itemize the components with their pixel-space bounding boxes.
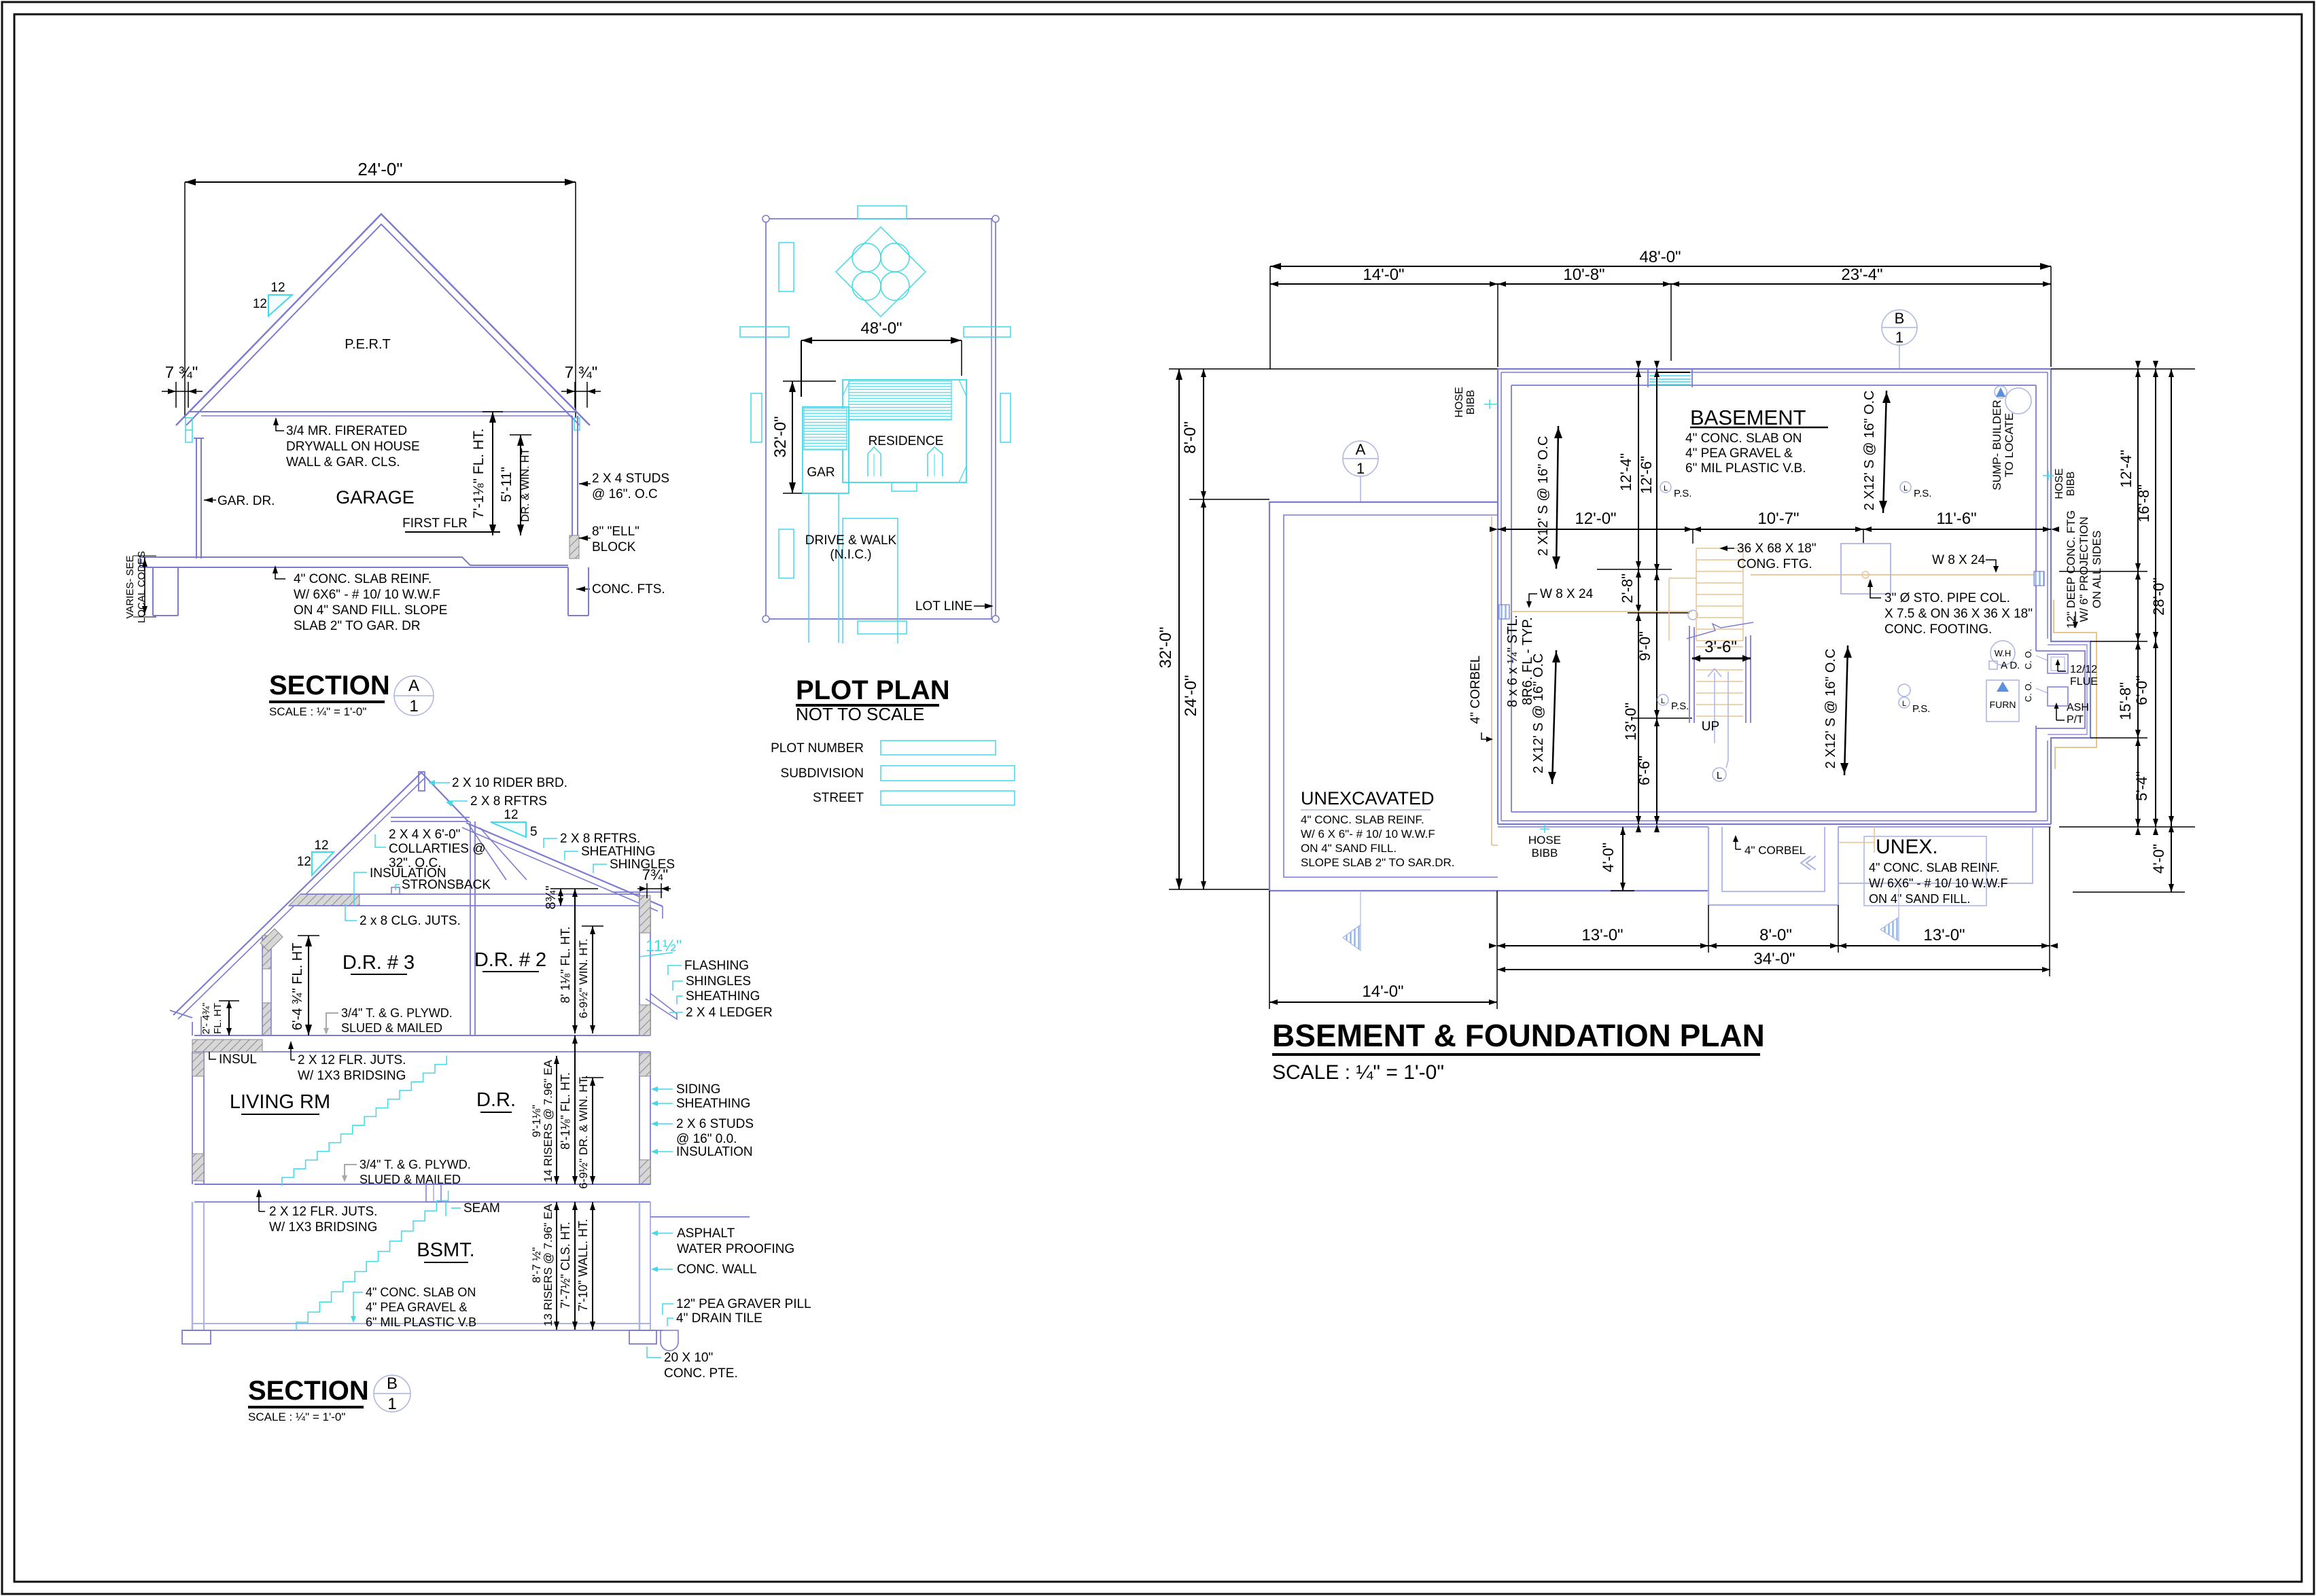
svg-text:SECTION: SECTION	[248, 1376, 369, 1406]
svg-text:L: L	[1661, 697, 1665, 705]
svg-text:1: 1	[1895, 329, 1903, 346]
svg-text:L: L	[1902, 700, 1906, 708]
svg-text:SLUED & MAILED: SLUED & MAILED	[359, 1173, 461, 1186]
svg-text:TO LOCATE: TO LOCATE	[2003, 413, 2016, 478]
svg-text:CONC. WALL: CONC. WALL	[677, 1262, 757, 1277]
svg-text:UP: UP	[1702, 720, 1719, 734]
svg-text:FURN: FURN	[1990, 699, 2016, 710]
svg-text:13'-0": 13'-0"	[1923, 926, 1965, 944]
svg-text:23'-4": 23'-4"	[1841, 266, 1882, 284]
svg-text:SUBDIVISION: SUBDIVISION	[781, 766, 864, 781]
svg-text:2 X 12 FLR. JUTS.: 2 X 12 FLR. JUTS.	[269, 1205, 377, 1219]
svg-text:12" PEA GRAVER PILL: 12" PEA GRAVER PILL	[676, 1297, 811, 1311]
svg-text:W 8 X 24: W 8 X 24	[1932, 553, 1986, 567]
svg-text:SHEATHING: SHEATHING	[581, 845, 655, 859]
svg-text:2 x 8 CLG. JUTS.: 2 x 8 CLG. JUTS.	[359, 914, 461, 928]
svg-text:P.S.: P.S.	[1914, 488, 1931, 499]
svg-text:7 ¾": 7 ¾"	[165, 363, 198, 382]
svg-text:INSULATION: INSULATION	[676, 1145, 753, 1159]
svg-text:4" PEA GRAVEL &: 4" PEA GRAVEL &	[366, 1300, 467, 1314]
svg-text:FIRST FLR: FIRST FLR	[402, 516, 468, 531]
svg-text:SCALE : ¼" = 1'-0": SCALE : ¼" = 1'-0"	[1272, 1061, 1444, 1084]
svg-text:12: 12	[297, 855, 311, 869]
svg-text:12: 12	[253, 297, 267, 311]
svg-text:4" PEA GRAVEL &: 4" PEA GRAVEL &	[1685, 446, 1793, 461]
svg-text:4" CONC. SLAB REINF.: 4" CONC. SLAB REINF.	[1869, 861, 1999, 874]
svg-text:32'-0": 32'-0"	[1157, 626, 1175, 668]
svg-text:8 x 6 x ¼" STL.: 8 x 6 x ¼" STL.	[1505, 615, 1520, 707]
svg-text:12: 12	[314, 838, 328, 853]
svg-text:A D.: A D.	[2001, 660, 2020, 671]
svg-text:2 X 10 RIDER BRD.: 2 X 10 RIDER BRD.	[452, 776, 567, 790]
svg-text:ASPHALT: ASPHALT	[677, 1226, 735, 1241]
svg-text:A: A	[1356, 441, 1366, 458]
svg-text:LOCAL CODES: LOCAL CODES	[136, 551, 147, 623]
svg-text:SUMP- BUILDER: SUMP- BUILDER	[1990, 400, 2003, 490]
svg-text:20 X 10": 20 X 10"	[664, 1351, 713, 1365]
svg-text:8' 1⅛" FL. HT.: 8' 1⅛" FL. HT.	[559, 927, 572, 1004]
svg-text:STRONSBACK: STRONSBACK	[402, 878, 491, 892]
svg-text:ON 4" SAND FILL. SLOPE: ON 4" SAND FILL. SLOPE	[294, 603, 447, 618]
svg-text:SCALE : ¼" = 1'-0": SCALE : ¼" = 1'-0"	[269, 705, 366, 718]
svg-text:VARIES- SEE: VARIES- SEE	[124, 555, 136, 618]
svg-text:UNEXCAVATED: UNEXCAVATED	[1301, 788, 1435, 809]
svg-text:4" CONC. SLAB ON: 4" CONC. SLAB ON	[366, 1285, 476, 1299]
svg-text:11'-6": 11'-6"	[1936, 510, 1976, 528]
svg-text:3/4" T. & G. PLYWD.: 3/4" T. & G. PLYWD.	[341, 1006, 453, 1020]
svg-text:6'-0": 6'-0"	[2133, 675, 2150, 705]
svg-text:3/4 MR. FIRERATED: 3/4 MR. FIRERATED	[286, 424, 407, 438]
svg-text:D.R.: D.R.	[476, 1089, 516, 1111]
svg-text:13'-0": 13'-0"	[1622, 703, 1639, 741]
svg-text:CONG. FTG.: CONG. FTG.	[1737, 557, 1812, 571]
svg-text:2 X 4 X 6'-0": 2 X 4 X 6'-0"	[389, 828, 460, 842]
svg-text:24'-0": 24'-0"	[1182, 675, 1200, 716]
svg-text:12: 12	[504, 808, 518, 822]
svg-text:2'-8": 2'-8"	[1619, 573, 1636, 603]
svg-text:12'-0": 12'-0"	[1575, 510, 1616, 528]
svg-text:W/ 6" PROJECTION: W/ 6" PROJECTION	[2077, 516, 2090, 622]
svg-text:32'-0": 32'-0"	[771, 416, 790, 457]
svg-text:1: 1	[387, 1395, 396, 1413]
svg-text:4'-0": 4'-0"	[2150, 844, 2167, 874]
svg-text:W/ 1X3 BRIDSING: W/ 1X3 BRIDSING	[269, 1220, 377, 1235]
svg-text:34'-0": 34'-0"	[1753, 950, 1795, 968]
svg-text:B: B	[1895, 310, 1905, 327]
svg-text:CONC. PTE.: CONC. PTE.	[664, 1366, 738, 1381]
svg-text:P.S.: P.S.	[1912, 703, 1930, 715]
svg-text:6-9½" WIN. HT.: 6-9½" WIN. HT.	[577, 938, 590, 1018]
svg-text:6'-4 ¾" FL. HT: 6'-4 ¾" FL. HT	[290, 943, 305, 1031]
svg-text:4" CONC. SLAB REINF.: 4" CONC. SLAB REINF.	[294, 572, 432, 586]
svg-text:2 X12' S @ 16" O.C: 2 X12' S @ 16" O.C	[1862, 391, 1877, 511]
svg-text:13'-0": 13'-0"	[1581, 926, 1623, 944]
svg-text:36 X 68 X 18": 36 X 68 X 18"	[1737, 542, 1817, 556]
svg-text:ON ALL SIDES: ON ALL SIDES	[2090, 531, 2103, 609]
svg-text:SHEATHING: SHEATHING	[686, 989, 760, 1004]
svg-text:8" "ELL": 8" "ELL"	[592, 525, 639, 539]
svg-text:14 RISERS @ 7.96" EA: 14 RISERS @ 7.96" EA	[542, 1059, 555, 1182]
svg-text:DRIVE & WALK: DRIVE & WALK	[805, 533, 897, 548]
svg-text:P.S.: P.S.	[1671, 701, 1689, 712]
svg-text:4" CONC. SLAB REINF.: 4" CONC. SLAB REINF.	[1301, 813, 1424, 826]
svg-text:P.E.R.T: P.E.R.T	[345, 337, 390, 352]
svg-text:4" DRAIN TILE: 4" DRAIN TILE	[676, 1311, 762, 1326]
svg-text:SHINGLES: SHINGLES	[686, 974, 751, 989]
svg-text:CONC. FOOTING.: CONC. FOOTING.	[1884, 622, 1992, 637]
svg-text:4" CORBEL: 4" CORBEL	[1469, 656, 1483, 724]
svg-text:8'-0": 8'-0"	[1759, 926, 1792, 944]
svg-text:(N.I.C.): (N.I.C.)	[830, 548, 871, 562]
svg-text:BSMT.: BSMT.	[417, 1239, 474, 1261]
svg-text:12: 12	[270, 281, 285, 295]
svg-text:GARAGE: GARAGE	[336, 487, 415, 508]
svg-text:C. O.: C. O.	[2023, 649, 2033, 669]
svg-text:FL. HT: FL. HT	[212, 1003, 224, 1034]
svg-text:ON 4" SAND FILL.: ON 4" SAND FILL.	[1301, 842, 1397, 855]
svg-text:2 X 8 RFTRS: 2 X 8 RFTRS	[470, 794, 547, 809]
svg-text:NOT TO SCALE: NOT TO SCALE	[796, 704, 924, 724]
svg-text:PLOT PLAN: PLOT PLAN	[796, 675, 950, 705]
svg-text:BLOCK: BLOCK	[592, 540, 636, 554]
svg-text:8¾": 8¾"	[544, 886, 559, 910]
svg-text:10'-7": 10'-7"	[1757, 510, 1799, 528]
svg-text:L: L	[1903, 484, 1908, 493]
svg-text:12'-4": 12'-4"	[1617, 453, 1634, 491]
svg-text:7'-7½" CLS. HT.: 7'-7½" CLS. HT.	[559, 1222, 572, 1309]
svg-text:UNEX.: UNEX.	[1876, 836, 1938, 858]
svg-text:W/ 6X6" - # 10/ 10 W.W.F: W/ 6X6" - # 10/ 10 W.W.F	[294, 588, 440, 602]
svg-text:SHEATHING: SHEATHING	[676, 1097, 750, 1111]
svg-text:@ 16". O.C: @ 16". O.C	[592, 487, 658, 501]
svg-text:P/T: P/T	[2067, 714, 2084, 726]
svg-text:BASEMENT: BASEMENT	[1690, 406, 1806, 429]
svg-text:24'-0": 24'-0"	[357, 159, 402, 179]
svg-text:W/ 6X6" - # 10/ 10 W.W.F: W/ 6X6" - # 10/ 10 W.W.F	[1869, 876, 2007, 890]
svg-text:WALL & GAR. CLS.: WALL & GAR. CLS.	[286, 455, 400, 469]
svg-text:2 X12' S @ 16" O.C: 2 X12' S @ 16" O.C	[1823, 649, 1838, 769]
svg-text:2 X12' S @ 16" O.C: 2 X12' S @ 16" O.C	[1536, 436, 1551, 556]
svg-text:GAR: GAR	[807, 465, 835, 480]
svg-text:BSEMENT & FOUNDATION PLAN: BSEMENT & FOUNDATION PLAN	[1272, 1018, 1765, 1053]
svg-text:COLLARTIES @: COLLARTIES @	[389, 842, 485, 856]
svg-text:FLASHING: FLASHING	[684, 959, 749, 973]
svg-text:PLOT NUMBER: PLOT NUMBER	[771, 741, 864, 756]
svg-text:FLUE: FLUE	[2070, 676, 2098, 688]
svg-text:2 X 4 STUDS: 2 X 4 STUDS	[592, 472, 669, 486]
svg-text:A: A	[408, 677, 419, 695]
svg-text:28'-0": 28'-0"	[2150, 578, 2167, 616]
svg-text:12'-6": 12'-6"	[1638, 456, 1655, 494]
svg-text:SIDING: SIDING	[676, 1082, 720, 1097]
svg-text:SEAM: SEAM	[463, 1201, 500, 1216]
svg-text:ON 4" SAND FILL.: ON 4" SAND FILL.	[1869, 892, 1970, 906]
svg-text:1: 1	[409, 697, 418, 715]
svg-text:HOSE: HOSE	[1528, 834, 1561, 847]
svg-text:9'-0": 9'-0"	[1636, 631, 1653, 661]
svg-text:C. O.: C. O.	[2023, 681, 2033, 702]
svg-text:4" CORBEL: 4" CORBEL	[1744, 844, 1806, 857]
svg-text:3" Ø STO. PIPE COL.: 3" Ø STO. PIPE COL.	[1884, 591, 2010, 605]
svg-text:13 RISERS @ 7.96" EA: 13 RISERS @ 7.96" EA	[542, 1203, 555, 1326]
svg-text:SLUED & MAILED: SLUED & MAILED	[341, 1021, 442, 1035]
svg-text:8'-0": 8'-0"	[1181, 421, 1199, 454]
svg-text:8'-1⅛" FL. HT.: 8'-1⅛" FL. HT.	[559, 1072, 572, 1150]
svg-text:12'-4": 12'-4"	[2118, 450, 2135, 488]
svg-text:BIBB: BIBB	[1465, 390, 1477, 414]
svg-text:SECTION: SECTION	[269, 671, 390, 701]
svg-text:16'-8": 16'-8"	[2135, 484, 2152, 522]
svg-text:SCALE : ¼" = 1'-0": SCALE : ¼" = 1'-0"	[248, 1411, 345, 1423]
svg-text:@ 16" 0.0.: @ 16" 0.0.	[676, 1132, 737, 1146]
svg-text:W.H: W.H	[1995, 648, 2012, 658]
svg-text:48'-0": 48'-0"	[1639, 248, 1681, 266]
svg-text:48'-0": 48'-0"	[860, 319, 902, 338]
svg-text:BIBB: BIBB	[2065, 472, 2077, 496]
svg-text:RESIDENCE: RESIDENCE	[868, 434, 944, 448]
svg-text:10'-8": 10'-8"	[1563, 266, 1604, 284]
svg-text:2 X 12 FLR. JUTS.: 2 X 12 FLR. JUTS.	[298, 1053, 406, 1067]
svg-text:HOSE: HOSE	[2054, 468, 2065, 499]
svg-text:12/12: 12/12	[2070, 664, 2097, 675]
svg-text:D.R. # 3: D.R. # 3	[343, 952, 415, 974]
svg-text:SLOPE SLAB 2" TO SAR.DR.: SLOPE SLAB 2" TO SAR.DR.	[1301, 856, 1455, 869]
svg-text:14'-0": 14'-0"	[1363, 266, 1404, 284]
svg-text:L: L	[1664, 484, 1668, 493]
svg-text:SLAB 2" TO GAR. DR: SLAB 2" TO GAR. DR	[294, 619, 421, 633]
svg-text:DRYWALL ON HOUSE: DRYWALL ON HOUSE	[286, 440, 420, 454]
svg-text:LOT LINE: LOT LINE	[915, 599, 972, 614]
svg-text:6" MIL PLASTIC V.B: 6" MIL PLASTIC V.B	[366, 1315, 476, 1329]
svg-text:7'-1⅛" FL. HT.: 7'-1⅛" FL. HT.	[471, 429, 487, 519]
svg-text:7'-10" WALL. HT.: 7'-10" WALL. HT.	[576, 1219, 590, 1311]
svg-text:15'-8": 15'-8"	[2117, 682, 2134, 720]
svg-text:2 X 6 STUDS: 2 X 6 STUDS	[676, 1117, 754, 1131]
svg-text:CONC. FTS.: CONC. FTS.	[592, 582, 665, 597]
svg-text:WATER PROOFING: WATER PROOFING	[677, 1242, 794, 1256]
svg-text:2 X 4 LEDGER: 2 X 4 LEDGER	[686, 1006, 773, 1020]
svg-text:8R6. FL - TYP.: 8R6. FL - TYP.	[1520, 617, 1535, 705]
svg-text:11½": 11½"	[646, 937, 682, 955]
svg-text:5'-4": 5'-4"	[2133, 771, 2150, 801]
svg-text:W/ 6 X 6"- # 10/ 10 W.W.F: W/ 6 X 6"- # 10/ 10 W.W.F	[1301, 828, 1435, 840]
svg-text:5'-11": 5'-11"	[499, 467, 514, 502]
svg-text:W 8 X 24: W 8 X 24	[1540, 587, 1594, 601]
svg-text:DR. & WIN. HT: DR. & WIN. HT	[520, 448, 531, 522]
svg-text:BIBB: BIBB	[1532, 847, 1558, 859]
svg-text:X 7.5 & ON 36 X 36 X 18": X 7.5 & ON 36 X 36 X 18"	[1884, 607, 2033, 621]
svg-text:1: 1	[1356, 460, 1365, 477]
svg-text:2 X 8 RFTRS.: 2 X 8 RFTRS.	[560, 832, 640, 846]
svg-text:6'-6": 6'-6"	[1636, 756, 1653, 785]
svg-text:6" MIL PLASTIC V.B.: 6" MIL PLASTIC V.B.	[1685, 461, 1806, 476]
svg-text:5: 5	[530, 825, 538, 839]
svg-text:14'-0": 14'-0"	[1362, 982, 1403, 1001]
svg-text:4" CONC. SLAB ON: 4" CONC. SLAB ON	[1685, 431, 1802, 446]
svg-text:W/ 1X3 BRIDSING: W/ 1X3 BRIDSING	[298, 1069, 406, 1083]
svg-text:STREET: STREET	[813, 791, 864, 805]
svg-text:L: L	[1717, 770, 1722, 781]
svg-text:B: B	[387, 1375, 398, 1393]
svg-text:3/4" T. & G. PLYWD.: 3/4" T. & G. PLYWD.	[359, 1158, 471, 1171]
svg-text:12" DEEP CONC. FTG: 12" DEEP CONC. FTG	[2065, 510, 2077, 628]
svg-text:LIVING RM: LIVING RM	[230, 1091, 330, 1113]
svg-text:GAR. DR.: GAR. DR.	[217, 494, 275, 508]
svg-text:INSUL: INSUL	[219, 1052, 257, 1067]
svg-text:7 ¾": 7 ¾"	[565, 363, 598, 382]
svg-text:P.S.: P.S.	[1674, 488, 1691, 499]
svg-text:3'-6": 3'-6"	[1704, 638, 1737, 656]
svg-text:ASH: ASH	[2067, 702, 2089, 713]
svg-text:4'-0": 4'-0"	[1600, 843, 1617, 872]
svg-text:HOSE: HOSE	[1454, 387, 1465, 417]
svg-text:6-9½" DR. & WIN. HT.: 6-9½" DR. & WIN. HT.	[577, 1075, 590, 1189]
svg-text:D.R. # 2: D.R. # 2	[474, 949, 546, 971]
svg-text:7¾": 7¾"	[642, 866, 668, 883]
svg-text:2'- 4¾": 2'- 4¾"	[200, 1003, 212, 1035]
